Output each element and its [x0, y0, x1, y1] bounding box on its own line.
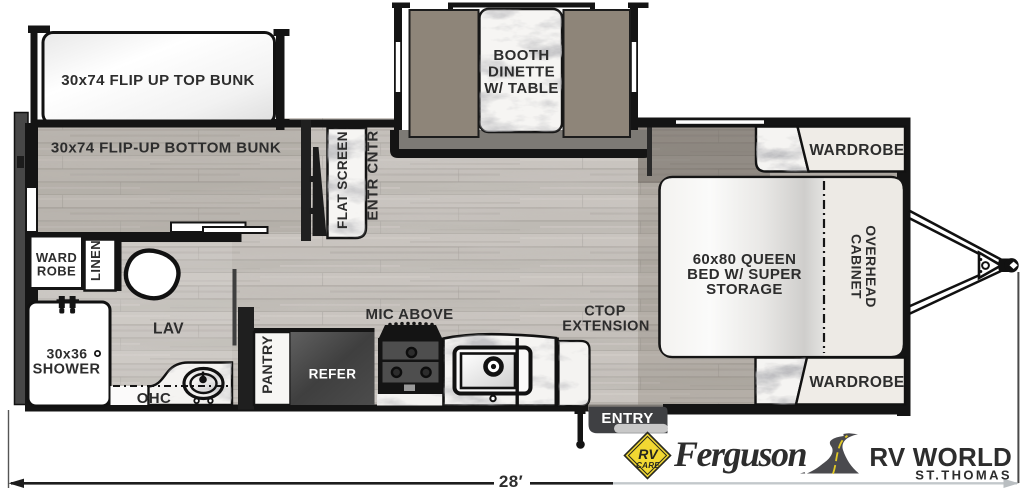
- svg-text:CTOP: CTOP: [584, 304, 626, 320]
- svg-text:WARDROBE: WARDROBE: [809, 142, 904, 159]
- svg-text:30x74 FLIP-UP BOTTOM BUNK: 30x74 FLIP-UP BOTTOM BUNK: [51, 140, 281, 157]
- svg-text:RV: RV: [638, 446, 659, 462]
- svg-text:ENTR CNTR: ENTR CNTR: [365, 130, 382, 220]
- svg-text:ROBE: ROBE: [37, 264, 76, 279]
- svg-text:EXTENSION: EXTENSION: [562, 319, 649, 335]
- svg-text:LINEN: LINEN: [88, 240, 103, 281]
- svg-text:WARDROBE: WARDROBE: [809, 374, 904, 391]
- svg-text:28′: 28′: [499, 472, 523, 489]
- svg-text:CARE: CARE: [636, 461, 660, 470]
- svg-text:30x36: 30x36: [47, 346, 88, 362]
- svg-text:REFER: REFER: [309, 367, 357, 382]
- svg-text:Ferguson: Ferguson: [673, 434, 807, 474]
- svg-text:OHC: OHC: [137, 390, 172, 407]
- svg-text:LAV: LAV: [153, 321, 184, 338]
- svg-text:DINETTE: DINETTE: [488, 64, 555, 81]
- svg-text:MIC ABOVE: MIC ABOVE: [365, 306, 453, 323]
- svg-text:STORAGE: STORAGE: [706, 281, 783, 298]
- svg-text:PANTRY: PANTRY: [259, 335, 275, 394]
- svg-text:ENTRY: ENTRY: [601, 410, 653, 427]
- svg-text:SHOWER: SHOWER: [33, 362, 101, 378]
- svg-text:BOOTH: BOOTH: [493, 47, 549, 64]
- svg-text:W/ TABLE: W/ TABLE: [484, 80, 559, 97]
- svg-text:CABINET: CABINET: [849, 234, 865, 299]
- svg-text:FLAT SCREEN: FLAT SCREEN: [335, 131, 350, 229]
- svg-text:ST.THOMAS: ST.THOMAS: [915, 468, 1012, 483]
- svg-text:30x74 FLIP UP TOP BUNK: 30x74 FLIP UP TOP BUNK: [61, 72, 255, 89]
